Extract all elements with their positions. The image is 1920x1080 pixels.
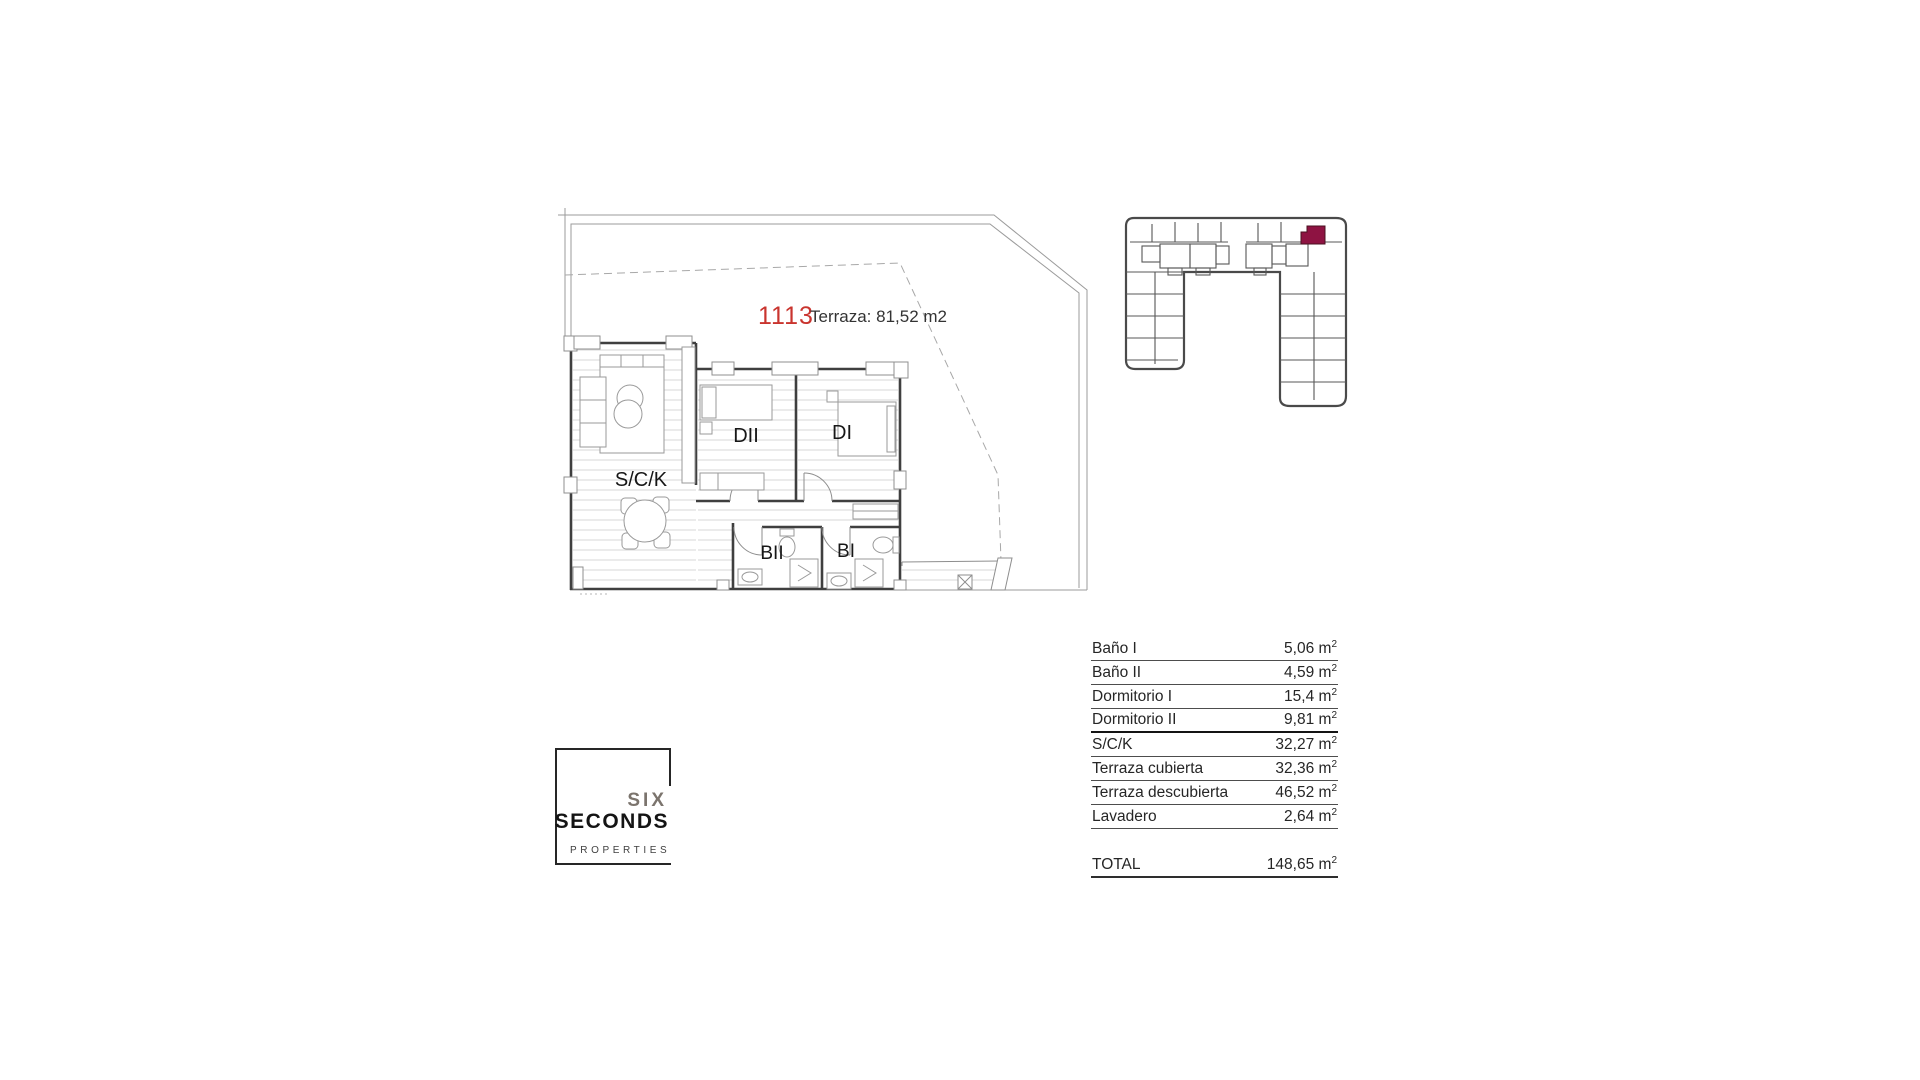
room-label-bano2: BII: [760, 543, 783, 564]
table-row: Baño I 5,06 m2: [1091, 637, 1338, 661]
row-label: Baño I: [1092, 640, 1137, 658]
kitchen-counter: [682, 347, 695, 483]
room-label-bano1: BI: [837, 541, 855, 562]
shower: [790, 559, 818, 587]
pouf: [614, 400, 642, 428]
row-value: 4,59 m2: [1284, 664, 1337, 682]
building-overview-map: [1118, 212, 1358, 412]
dining-table: [624, 500, 666, 542]
table-row: Baño II 4,59 m2: [1091, 661, 1338, 685]
table-total-row: TOTAL 148,65 m2: [1091, 852, 1338, 878]
logo-word-six: SIX: [627, 791, 667, 810]
pillow: [887, 406, 895, 452]
sofa: [580, 377, 606, 447]
six-seconds-properties-logo: SIX SECONDS PROPERTIES: [555, 748, 671, 865]
table-row: Dormitorio I 15,4 m2: [1091, 685, 1338, 709]
row-label: Dormitorio I: [1092, 688, 1172, 706]
row-value: 2,64 m2: [1284, 808, 1337, 826]
floor-plan-page: 1113 Terraza: 81,52 m2 S/C/K DII DI BII …: [0, 0, 1920, 1080]
room-label-dormitorio2: DII: [733, 425, 759, 447]
row-value: 32,36 m2: [1275, 760, 1337, 778]
total-label: TOTAL: [1092, 856, 1141, 874]
row-value: 15,4 m2: [1284, 688, 1337, 706]
row-label: Dormitorio II: [1092, 711, 1176, 729]
row-value: 32,27 m2: [1275, 736, 1337, 754]
nightstand: [700, 422, 712, 434]
table-row: Lavadero 2,64 m2: [1091, 805, 1338, 829]
room-areas-table: Baño I 5,06 m2 Baño II 4,59 m2 Dormitori…: [1091, 637, 1338, 878]
nightstand: [827, 391, 838, 402]
row-label: Lavadero: [1092, 808, 1157, 826]
row-label: S/C/K: [1092, 736, 1132, 754]
total-value: 148,65 m2: [1267, 856, 1337, 874]
toilet: [873, 537, 893, 553]
floor-plan-drawing: 1113 Terraza: 81,52 m2 S/C/K DII DI BII …: [550, 195, 1115, 625]
dresser: [700, 473, 764, 490]
room-label-sck: S/C/K: [615, 469, 668, 491]
row-value: 9,81 m2: [1284, 711, 1337, 729]
table-row: S/C/K 32,27 m2: [1091, 733, 1338, 757]
row-value: 46,52 m2: [1275, 784, 1337, 802]
room-label-dormitorio1: DI: [832, 422, 852, 444]
row-label: Baño II: [1092, 664, 1141, 682]
toilet-tank: [893, 537, 899, 553]
row-label: Terraza cubierta: [1092, 760, 1203, 778]
terrace-area-label: Terraza: 81,52 m2: [810, 307, 947, 326]
shower: [855, 559, 883, 587]
row-label: Terraza descubierta: [1092, 784, 1228, 802]
unit-number-label: 1113: [758, 302, 814, 330]
table-row: Dormitorio II 9,81 m2: [1091, 709, 1338, 733]
table-row: Terraza descubierta 46,52 m2: [1091, 781, 1338, 805]
table-row: Terraza cubierta 32,36 m2: [1091, 757, 1338, 781]
logo-word-properties: PROPERTIES: [570, 846, 670, 856]
toilet-tank: [780, 529, 794, 536]
row-value: 5,06 m2: [1284, 640, 1337, 658]
pillow: [702, 387, 716, 418]
logo-word-seconds: SECONDS: [555, 811, 669, 832]
